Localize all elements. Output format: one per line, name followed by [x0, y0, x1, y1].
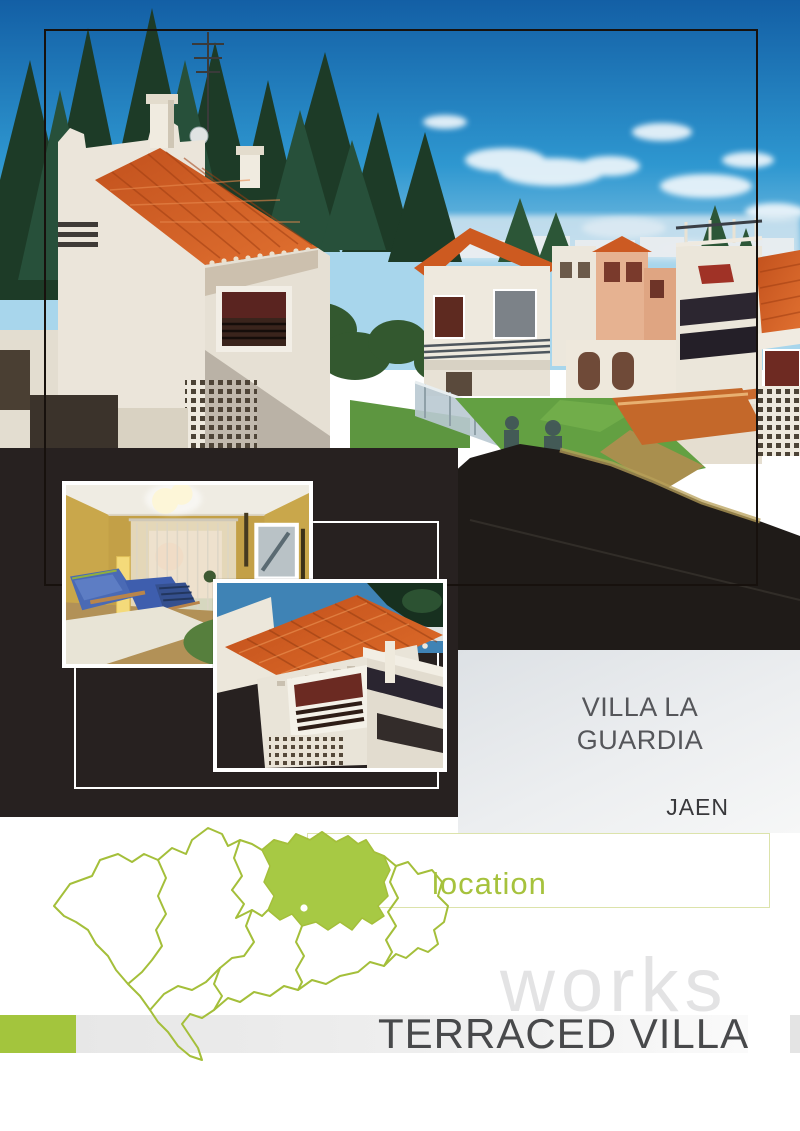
project-title-line1: VILLA LA — [550, 691, 730, 724]
border-huelva-sevilla — [128, 860, 166, 984]
map-province-jaen — [262, 832, 390, 930]
province-label: JAEN — [666, 794, 729, 821]
lattice-wall — [269, 735, 343, 765]
inset-photo-villa-detail — [213, 579, 447, 772]
border-sevilla-cordoba — [232, 840, 242, 890]
far-right-roof — [756, 250, 800, 396]
brochure-page: VILLA LA GUARDIA JAEN — [0, 0, 800, 1131]
location-label: location — [432, 866, 547, 902]
border-malaga-granada — [296, 926, 304, 990]
bottom-band-sliver — [790, 1015, 800, 1053]
location-dot — [300, 904, 307, 911]
project-title: VILLA LA GUARDIA — [550, 691, 730, 757]
work-type-label: TERRACED VILLA — [378, 1012, 749, 1056]
project-title-line2: GUARDIA — [550, 724, 730, 757]
border-granada-almeria — [384, 866, 398, 966]
border-sevilla-malaga — [220, 910, 254, 968]
villa-detail-art — [217, 583, 443, 768]
border-cadiz-north — [150, 968, 220, 1010]
